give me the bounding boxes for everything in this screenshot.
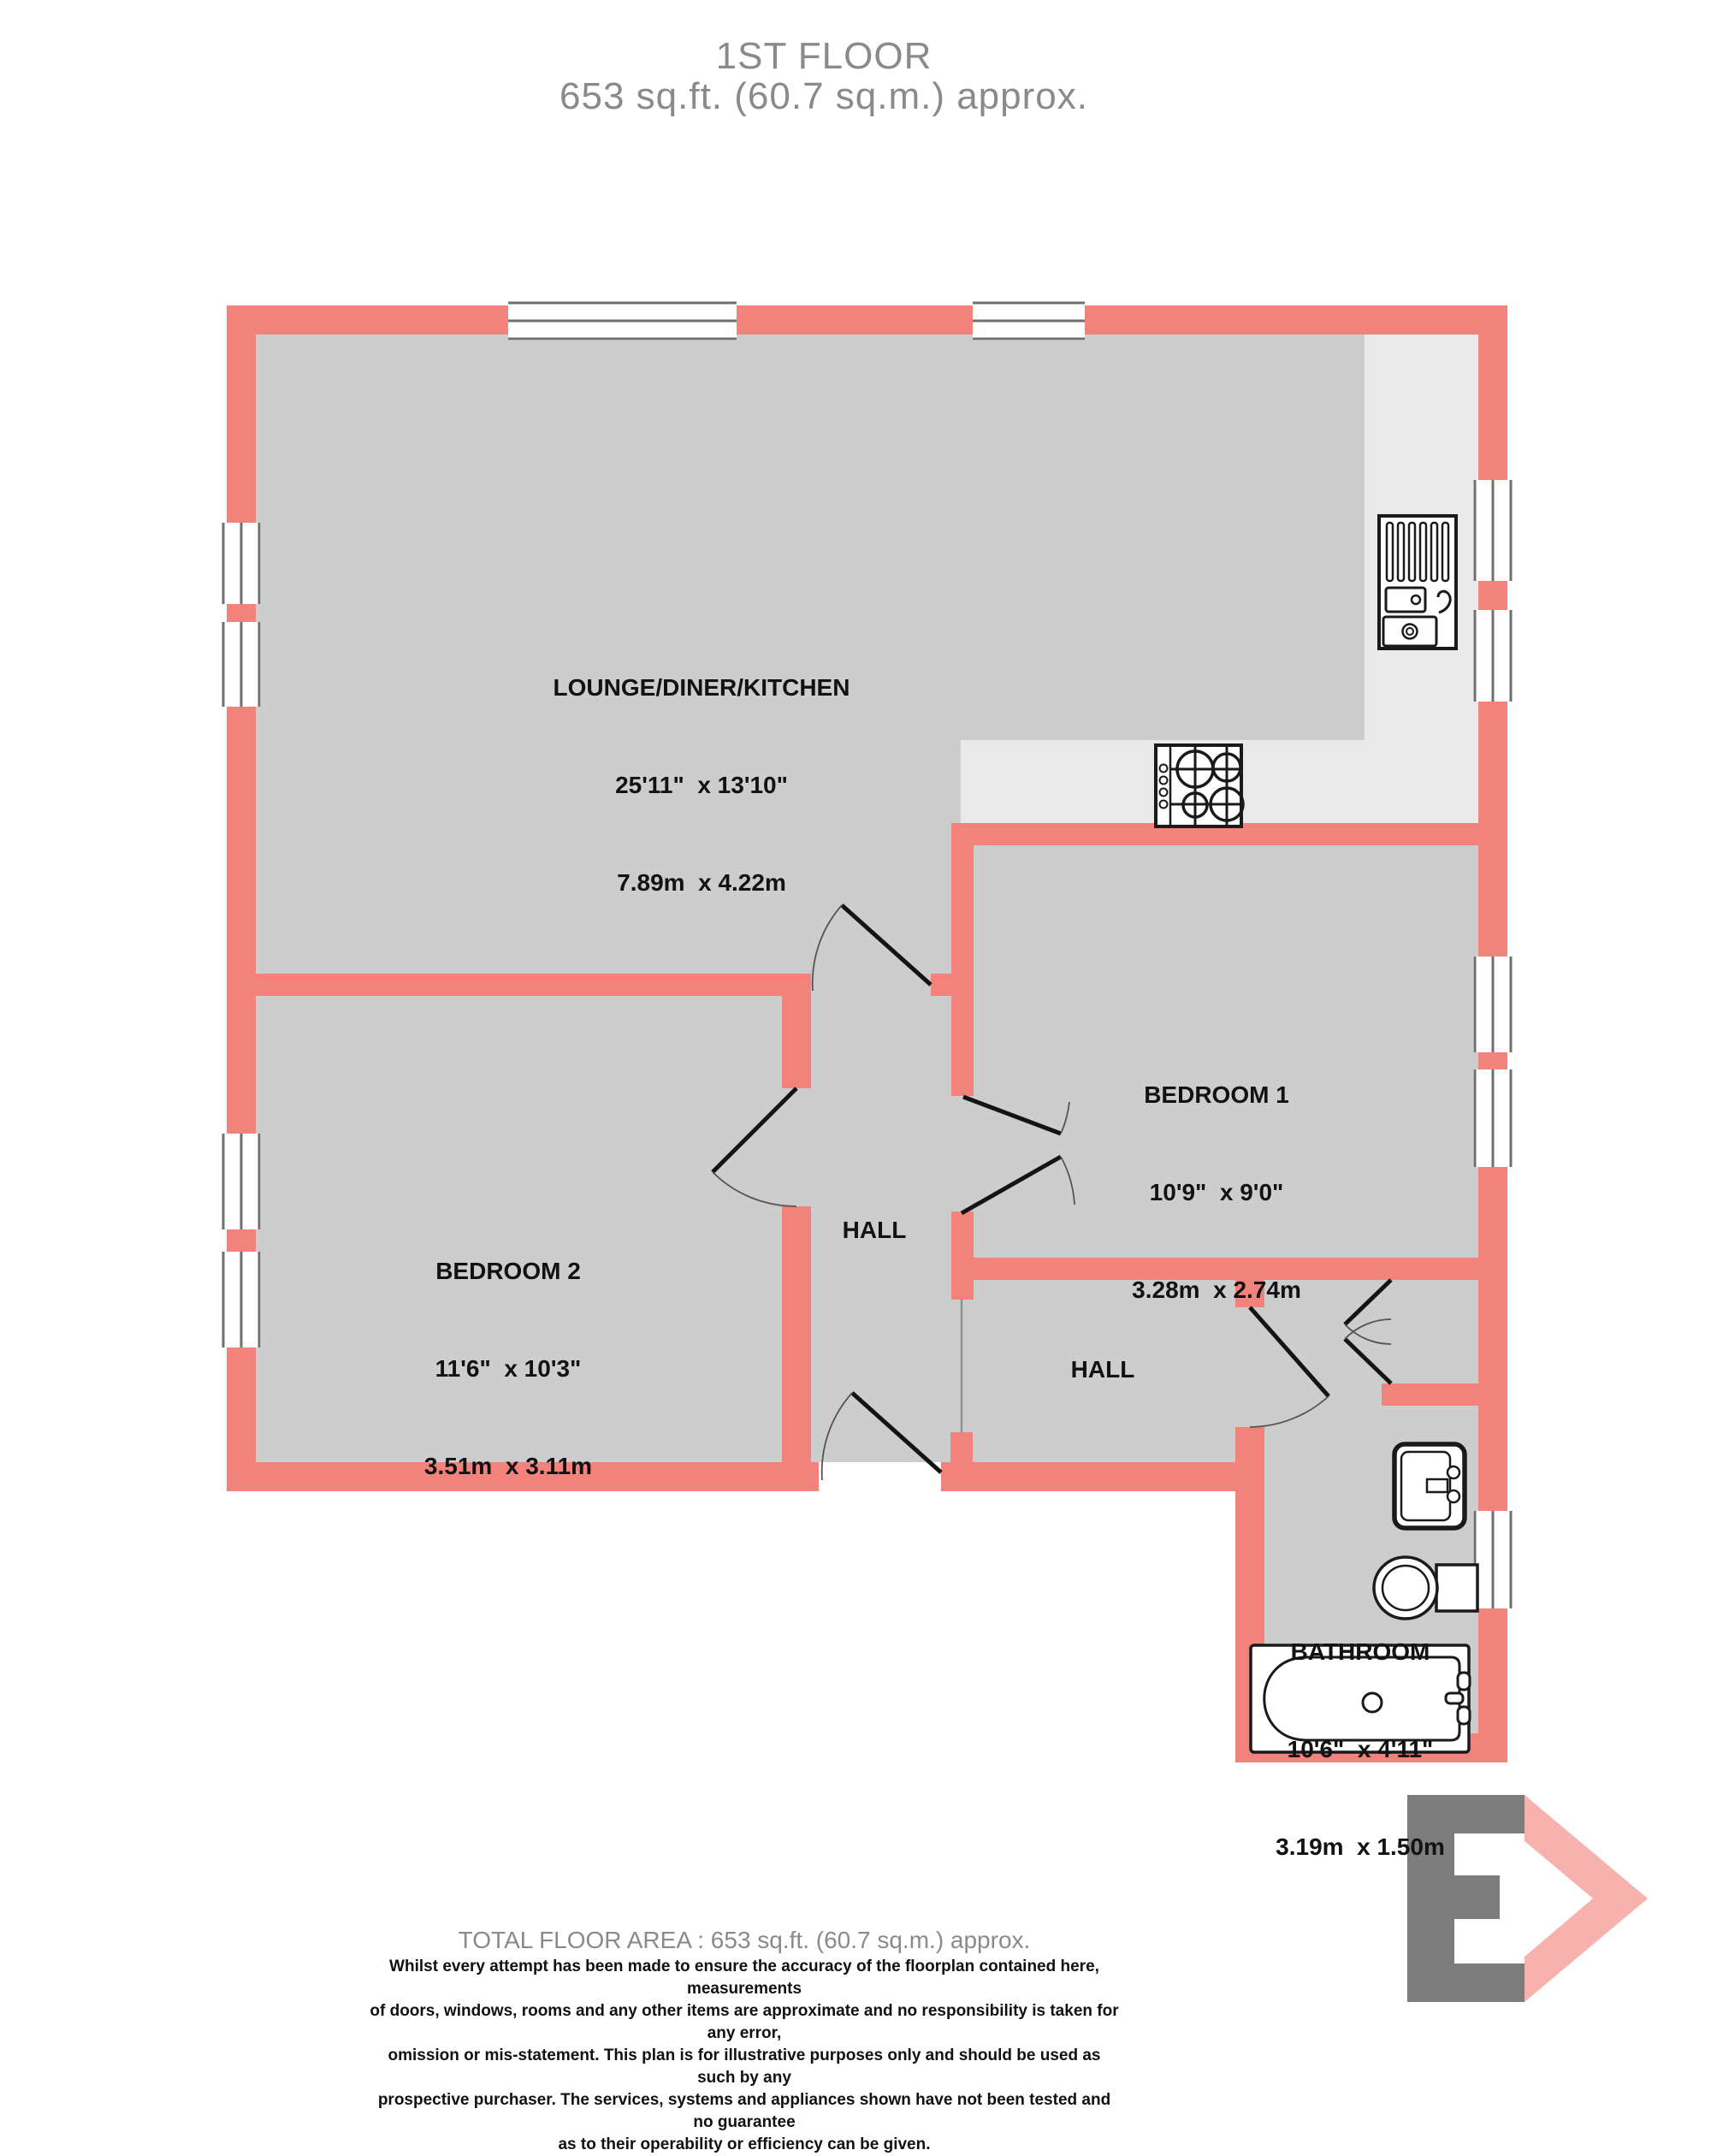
room-dims-metric: 7.89m x 4.22m bbox=[445, 867, 958, 899]
room-dims-imperial: 10'6" x 4'11" bbox=[1146, 1733, 1574, 1766]
room-dims-metric: 3.51m x 3.11m bbox=[294, 1450, 722, 1483]
room-name: BATHROOM bbox=[1146, 1636, 1574, 1668]
window-icon bbox=[222, 1252, 261, 1347]
room-label-bedroom2: BEDROOM 2 11'6" x 10'3" 3.51m x 3.11m bbox=[294, 1190, 722, 1548]
bathroom-sink-icon bbox=[1394, 1444, 1465, 1528]
room-dims-imperial: 11'6" x 10'3" bbox=[294, 1353, 722, 1385]
room-label-lounge: LOUNGE/DINER/KITCHEN 25'11" x 13'10" 7.8… bbox=[445, 607, 958, 964]
window-icon bbox=[222, 523, 261, 604]
room-label-bathroom: BATHROOM 10'6" x 4'11" 3.19m x 1.50m bbox=[1146, 1571, 1574, 1928]
window-icon bbox=[1473, 957, 1513, 1052]
wall-hall-stub bbox=[950, 1432, 973, 1462]
room-label-hall2: HALL bbox=[1017, 1353, 1188, 1386]
window-icon bbox=[222, 1134, 261, 1229]
window-icon bbox=[973, 301, 1085, 341]
room-dims-imperial: 25'11" x 13'10" bbox=[445, 769, 958, 802]
kitchen-sink-icon bbox=[1379, 516, 1456, 649]
window-icon bbox=[1473, 1069, 1513, 1167]
room-dims-metric: 3.19m x 1.50m bbox=[1146, 1831, 1574, 1863]
floor-area-subtitle: 653 sq.ft. (60.7 sq.m.) approx. bbox=[0, 76, 1648, 116]
wall-corridor-bottom bbox=[1382, 1383, 1507, 1406]
disclaimer-text: Whilst every attempt has been made to en… bbox=[368, 1956, 1121, 2156]
room-dims-imperial: 10'9" x 9'0" bbox=[1003, 1176, 1430, 1209]
room-label-bedroom1: BEDROOM 1 10'9" x 9'0" 3.28m x 2.74m bbox=[1003, 1014, 1430, 1371]
room-name: LOUNGE/DINER/KITCHEN bbox=[445, 672, 958, 704]
room-dims-metric: 3.28m x 2.74m bbox=[1003, 1274, 1430, 1306]
wall-bedroom2-upper bbox=[782, 996, 811, 1088]
wall-bottom-right bbox=[941, 1462, 1264, 1491]
window-icon bbox=[222, 622, 261, 707]
page-title: 1ST FLOOR 653 sq.ft. (60.7 sq.m.) approx… bbox=[0, 36, 1648, 116]
room-name: BEDROOM 1 bbox=[1003, 1079, 1430, 1111]
window-icon bbox=[508, 301, 737, 341]
hob-icon bbox=[1156, 745, 1243, 826]
wall-top bbox=[227, 305, 1507, 335]
total-floor-area: TOTAL FLOOR AREA : 653 sq.ft. (60.7 sq.m… bbox=[317, 1928, 1172, 1953]
floor-title: 1ST FLOOR bbox=[0, 36, 1648, 76]
room-name: BEDROOM 2 bbox=[294, 1255, 722, 1288]
floorplan-page: 1ST FLOOR 653 sq.ft. (60.7 sq.m.) approx… bbox=[0, 0, 1711, 2058]
window-icon bbox=[1473, 480, 1513, 581]
wall-lounge-bottom bbox=[256, 974, 811, 996]
window-icon bbox=[1473, 610, 1513, 702]
room-label-hall1: HALL bbox=[789, 1214, 960, 1247]
